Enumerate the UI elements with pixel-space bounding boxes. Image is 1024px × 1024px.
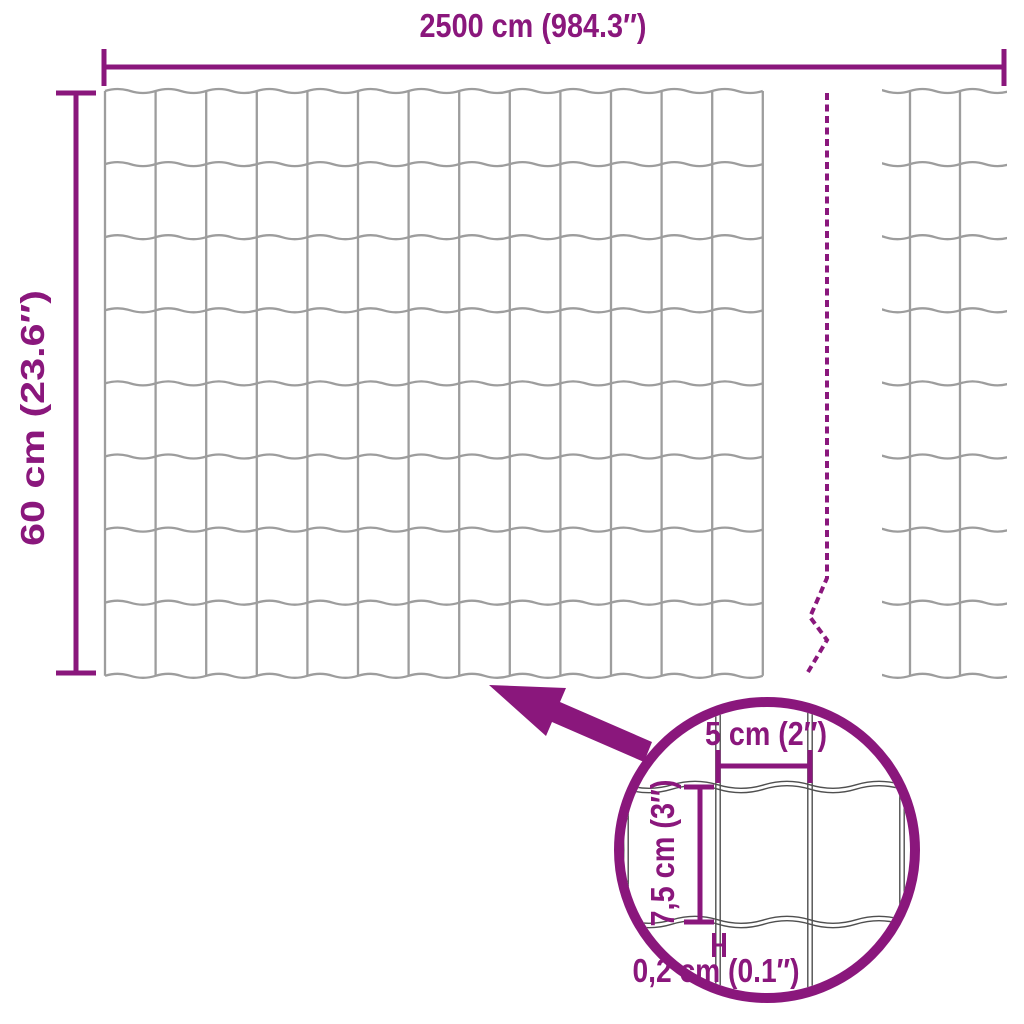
mesh-horizontal-wire [860,162,1010,166]
fence-mesh-main-panel [105,89,763,678]
width-dimension-label: 2500 cm (984.3″) [420,7,647,44]
mesh-horizontal-wire [860,528,1010,532]
mesh-horizontal-wire [105,674,763,678]
mesh-horizontal-wire [860,89,1010,93]
mesh-horizontal-wire [860,674,1010,678]
mesh-opening-height-label: 7,5 cm (3″) [644,780,681,927]
product-dimension-diagram: 2500 cm (984.3″) 60 cm (23.6″) 5 cm (2″)… [0,0,1024,1024]
zoom-arrow-icon [489,685,652,762]
mesh-horizontal-wire [860,308,1010,312]
mesh-horizontal-wire [860,455,1010,459]
mesh-horizontal-wire [105,455,763,459]
mesh-horizontal-wire [105,162,763,166]
mesh-horizontal-wire [860,235,1010,239]
wire-thickness-label: 0,2 cm (0.1″) [633,952,800,989]
mesh-horizontal-wire [860,381,1010,385]
height-dimension: 60 cm (23.6″) [14,93,96,673]
width-dimension: 2500 cm (984.3″) [104,7,1004,86]
mesh-horizontal-wire [105,528,763,532]
mesh-opening-width-label: 5 cm (2″) [705,715,827,752]
mesh-horizontal-wire [105,235,763,239]
mesh-horizontal-wire [105,381,763,385]
mesh-horizontal-wire [105,308,763,312]
mesh-horizontal-wire [105,601,763,605]
fence-mesh-right-panel-horizontals [860,89,1010,678]
break-line [808,93,827,672]
mesh-horizontal-wire [105,89,763,93]
height-dimension-label: 60 cm (23.6″) [14,290,51,546]
mesh-horizontal-wire [860,601,1010,605]
fence-dimension-diagram: 2500 cm (984.3″) 60 cm (23.6″) 5 cm (2″)… [0,0,1024,1024]
